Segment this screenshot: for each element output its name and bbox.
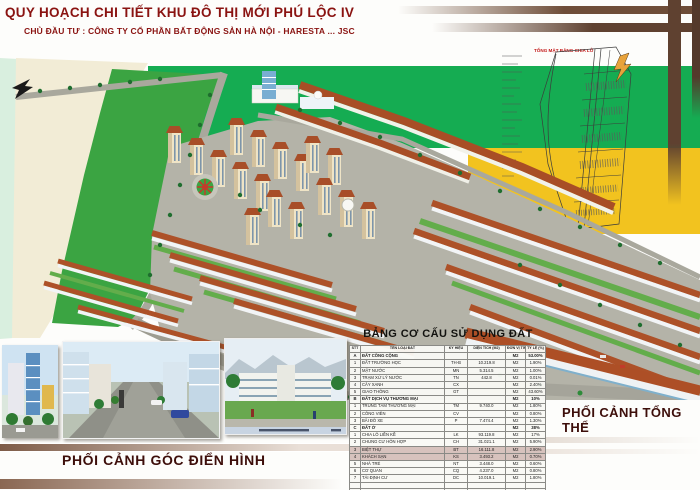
render-dome <box>342 199 354 211</box>
render-tower <box>316 178 333 215</box>
perspective-photo-1 <box>2 345 58 438</box>
table-row: 3TRẠM XỬ LÝ NƯỚCTN442.8M20.01% <box>350 374 546 381</box>
table-row: 3BÃI ĐỖ XEP7.474.4M21.30% <box>350 417 546 424</box>
table-row: 1ĐẤT TRƯỜNG HỌCTH-B10.219.8M21.90% <box>350 360 546 367</box>
page-title: QUY HOẠCH CHI TIẾT KHU ĐÔ THỊ MỚI PHÚ LỘ… <box>5 5 475 20</box>
land-use-table: STT TÊN LOẠI ĐẤT KÝ HIỆU DIỆN TÍCH (M2) … <box>349 345 546 490</box>
table-row: 4KHÁCH SẠNKS3.493.2M20.70% <box>350 453 546 460</box>
table-row: 5NHÀ TRẺNT3.448.0M20.60% <box>350 461 546 468</box>
right-brown-bar-2 <box>692 0 700 118</box>
render-tower <box>304 136 321 173</box>
table-row: 2CÔNG VIÊNCVM20.80% <box>350 410 546 417</box>
page-subtitle: CHỦ ĐẦU TƯ : CÔNG TY CỔ PHẦN BẤT ĐỘNG SẢ… <box>24 26 484 36</box>
table-row: 5GIAO THÔNGGTM243.60% <box>350 389 546 396</box>
table-row: CĐẤT ỞM238% <box>350 425 546 432</box>
right-brown-bar-1 <box>668 0 681 205</box>
column-header-area: DIỆN TÍCH (M2) <box>468 346 506 353</box>
column-header-code: KÝ HIỆU <box>445 346 468 353</box>
table-row: 2CHUNG CƯ HỖN HỢPCH31.021.1M25.90% <box>350 439 546 446</box>
column-header-name: TÊN LOẠI ĐẤT <box>361 346 445 353</box>
table-row: 3BIỆT THỰBT16.111.8M22.90% <box>350 446 546 453</box>
render-tower <box>288 202 305 239</box>
caption-right-bar-1 <box>532 437 700 443</box>
table-row: 6CƠ QUANCQ4.237.0M20.80% <box>350 468 546 475</box>
render-tower <box>166 126 183 163</box>
caption-bottom-left: PHỐI CẢNH GÓC ĐIỂN HÌNH <box>62 452 302 468</box>
render-tower <box>266 190 283 227</box>
render-roundabout <box>192 174 218 200</box>
table-row: 1CHIA LÔ LIỀN KỀLK93.119.8M217% <box>350 432 546 439</box>
caption-left-bottom-bar <box>0 479 360 489</box>
table-row: 4CÂY XANHCXM22.40% <box>350 381 546 388</box>
caption-left-top-bar <box>0 443 352 452</box>
render-tower <box>244 208 261 245</box>
table-row: 1TRUNG TÂM THƯƠNG MẠITM9.740.0M21.80% <box>350 403 546 410</box>
land-use-table-title: BẢNG CƠ CẤU SỬ DỤNG ĐẤT <box>355 328 541 340</box>
table-row: BĐẤT DỊCH VỤ THƯƠNG MẠIM210% <box>350 396 546 403</box>
table-header-row: STT TÊN LOẠI ĐẤT KÝ HIỆU DIỆN TÍCH (M2) … <box>350 346 546 353</box>
column-header-unit: ĐƠN VỊ TÍNH <box>506 346 526 353</box>
table-row: 2MẶT NƯỚCMN5.314.5M21.00% <box>350 367 546 374</box>
perspective-photo-2 <box>62 341 220 439</box>
column-header-pct: TỶ LỆ (%) <box>526 346 546 353</box>
render-tower <box>228 118 245 155</box>
render-tower <box>360 202 377 239</box>
perspective-photo-3 <box>224 338 347 435</box>
render-tower <box>272 142 289 179</box>
caption-right-bar-2 <box>540 449 700 454</box>
caption-bottom-right: PHỐI CẢNH TỔNG THỂ <box>562 405 700 435</box>
table-row: AĐẤT CÔNG CỘNGM253.00% <box>350 353 546 360</box>
render-tower <box>250 130 267 167</box>
table-row: 7TÁI ĐỊNH CƯDC10.019.1M21.80% <box>350 475 546 482</box>
column-header-stt: STT <box>350 346 361 353</box>
land-use-table-rows: AĐẤT CÔNG CỘNGM253.00%1ĐẤT TRƯỜNG HỌCTH-… <box>350 353 546 490</box>
presentation-board: TỔNG MẶT BẰNG CHIA LÔ <box>0 0 700 490</box>
